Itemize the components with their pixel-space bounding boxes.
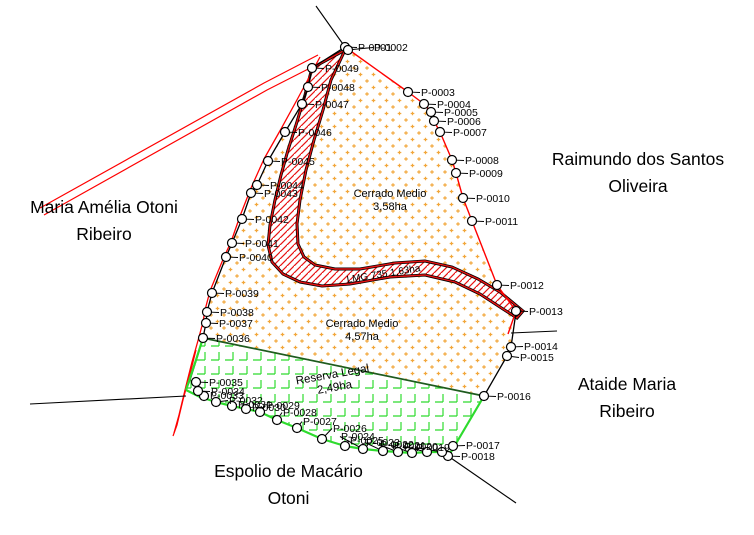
point-leader-tick xyxy=(511,357,519,358)
neighbor-name-line: Raimundo dos Santos xyxy=(533,146,743,173)
boundary-leader-line xyxy=(30,396,186,404)
survey-point-marker xyxy=(281,128,290,137)
neighbor-name-line: Otoni xyxy=(196,485,381,512)
survey-point-marker xyxy=(404,88,413,97)
boundary-leader-line xyxy=(316,6,345,47)
neighbor-label-espolio: Espolio de Macário Otoni xyxy=(196,458,381,512)
survey-point-label: P-0013 xyxy=(529,306,563,318)
survey-point-label: P-0037 xyxy=(219,318,253,330)
survey-point-label: P-0040 xyxy=(239,252,273,264)
survey-point-marker xyxy=(448,156,457,165)
survey-point-label: P-0038 xyxy=(220,307,254,319)
survey-point-marker xyxy=(192,378,201,387)
survey-point-marker xyxy=(427,108,436,117)
survey-point-marker xyxy=(273,416,282,425)
survey-point-label: P-0044 xyxy=(270,180,304,192)
survey-point-label: P-0046 xyxy=(298,127,332,139)
survey-point-marker xyxy=(298,100,307,109)
survey-point-label: P-0042 xyxy=(255,214,289,226)
survey-point-label: P-0003 xyxy=(421,87,455,99)
survey-point-label: P-0010 xyxy=(476,193,510,205)
survey-point-marker xyxy=(503,352,512,361)
survey-point-label: P-0045 xyxy=(281,156,315,168)
survey-point-marker xyxy=(452,169,461,178)
survey-point-marker xyxy=(304,83,313,92)
survey-map: Cerrado Medio3,58haCerrado Medio4,57haRe… xyxy=(0,0,754,535)
survey-point-marker xyxy=(430,117,439,126)
survey-point-marker xyxy=(208,289,217,298)
survey-point-marker xyxy=(436,128,445,137)
survey-point-marker xyxy=(247,189,256,198)
survey-point-label: P-0018 xyxy=(461,451,495,463)
survey-point-marker xyxy=(507,343,516,352)
neighbor-name-line: Oliveira xyxy=(533,173,743,200)
neighbor-name-line: Ataide Maria xyxy=(552,371,702,398)
survey-point-marker xyxy=(293,424,302,433)
survey-point-P-0018: P-0018 xyxy=(444,451,496,463)
survey-point-marker xyxy=(253,181,262,190)
survey-point-marker xyxy=(420,100,429,109)
survey-point-marker xyxy=(228,239,237,248)
survey-point-marker xyxy=(222,253,231,262)
survey-point-label: P-0009 xyxy=(469,168,503,180)
boundary-leader-line xyxy=(448,456,516,503)
survey-point-label: P-0048 xyxy=(321,82,355,94)
survey-point-label: P-0036 xyxy=(216,333,250,345)
survey-point-marker xyxy=(341,442,350,451)
survey-point-P-0007: P-0007 xyxy=(436,127,488,139)
survey-point-P-0008: P-0008 xyxy=(448,155,500,167)
neighbor-label-maria-amelia: Maria Amélia Otoni Ribeiro xyxy=(13,194,195,248)
survey-point-label: P-0015 xyxy=(520,352,554,364)
neighbor-name-line: Ribeiro xyxy=(552,398,702,425)
survey-point-label: P-0025 xyxy=(350,435,384,447)
survey-plat-page: Cerrado Medio3,58haCerrado Medio4,57haRe… xyxy=(0,0,754,535)
survey-point-marker xyxy=(308,64,317,73)
neighbor-name-line: Espolio de Macário xyxy=(196,458,381,485)
neighbor-name-line: Maria Amélia Otoni xyxy=(13,194,195,221)
neighbor-label-raimundo: Raimundo dos Santos Oliveira xyxy=(533,146,743,200)
survey-point-label: P-0007 xyxy=(453,127,487,139)
survey-point-marker xyxy=(512,307,521,316)
boundary-leader-line xyxy=(511,331,557,333)
survey-point-marker xyxy=(318,435,327,444)
survey-point-marker xyxy=(344,46,353,55)
neighbor-name-line: Ribeiro xyxy=(13,221,195,248)
survey-point-marker xyxy=(238,215,247,224)
survey-point-marker xyxy=(459,194,468,203)
survey-point-label: P-0026 xyxy=(333,423,367,435)
survey-point-label: P-0049 xyxy=(325,63,359,75)
survey-point-marker xyxy=(480,392,489,401)
survey-point-label: P-0011 xyxy=(485,216,518,228)
survey-point-marker xyxy=(493,281,502,290)
survey-point-label: P-0041 xyxy=(245,238,279,250)
survey-point-P-0009: P-0009 xyxy=(452,168,504,180)
survey-point-label: P-0008 xyxy=(465,155,499,167)
survey-point-P-0011: P-0011 xyxy=(468,216,519,228)
survey-point-P-0016: P-0016 xyxy=(480,391,532,403)
survey-point-label: P-0012 xyxy=(510,280,544,292)
survey-point-label: P-0016 xyxy=(497,391,531,403)
survey-point-label: P-0002 xyxy=(374,42,408,54)
survey-point-marker xyxy=(264,157,273,166)
survey-point-label: P-0035 xyxy=(209,377,243,389)
survey-point-P-0010: P-0010 xyxy=(459,193,511,205)
survey-point-marker xyxy=(199,334,208,343)
survey-point-marker xyxy=(468,217,477,226)
survey-point-marker xyxy=(194,387,203,396)
survey-point-label: P-0047 xyxy=(315,99,349,111)
survey-point-P-0015: P-0015 xyxy=(503,352,555,365)
survey-point-marker xyxy=(202,319,211,328)
neighbor-label-ataide: Ataide Maria Ribeiro xyxy=(552,371,702,425)
survey-point-label: P-0039 xyxy=(225,288,259,300)
survey-point-marker xyxy=(203,308,212,317)
